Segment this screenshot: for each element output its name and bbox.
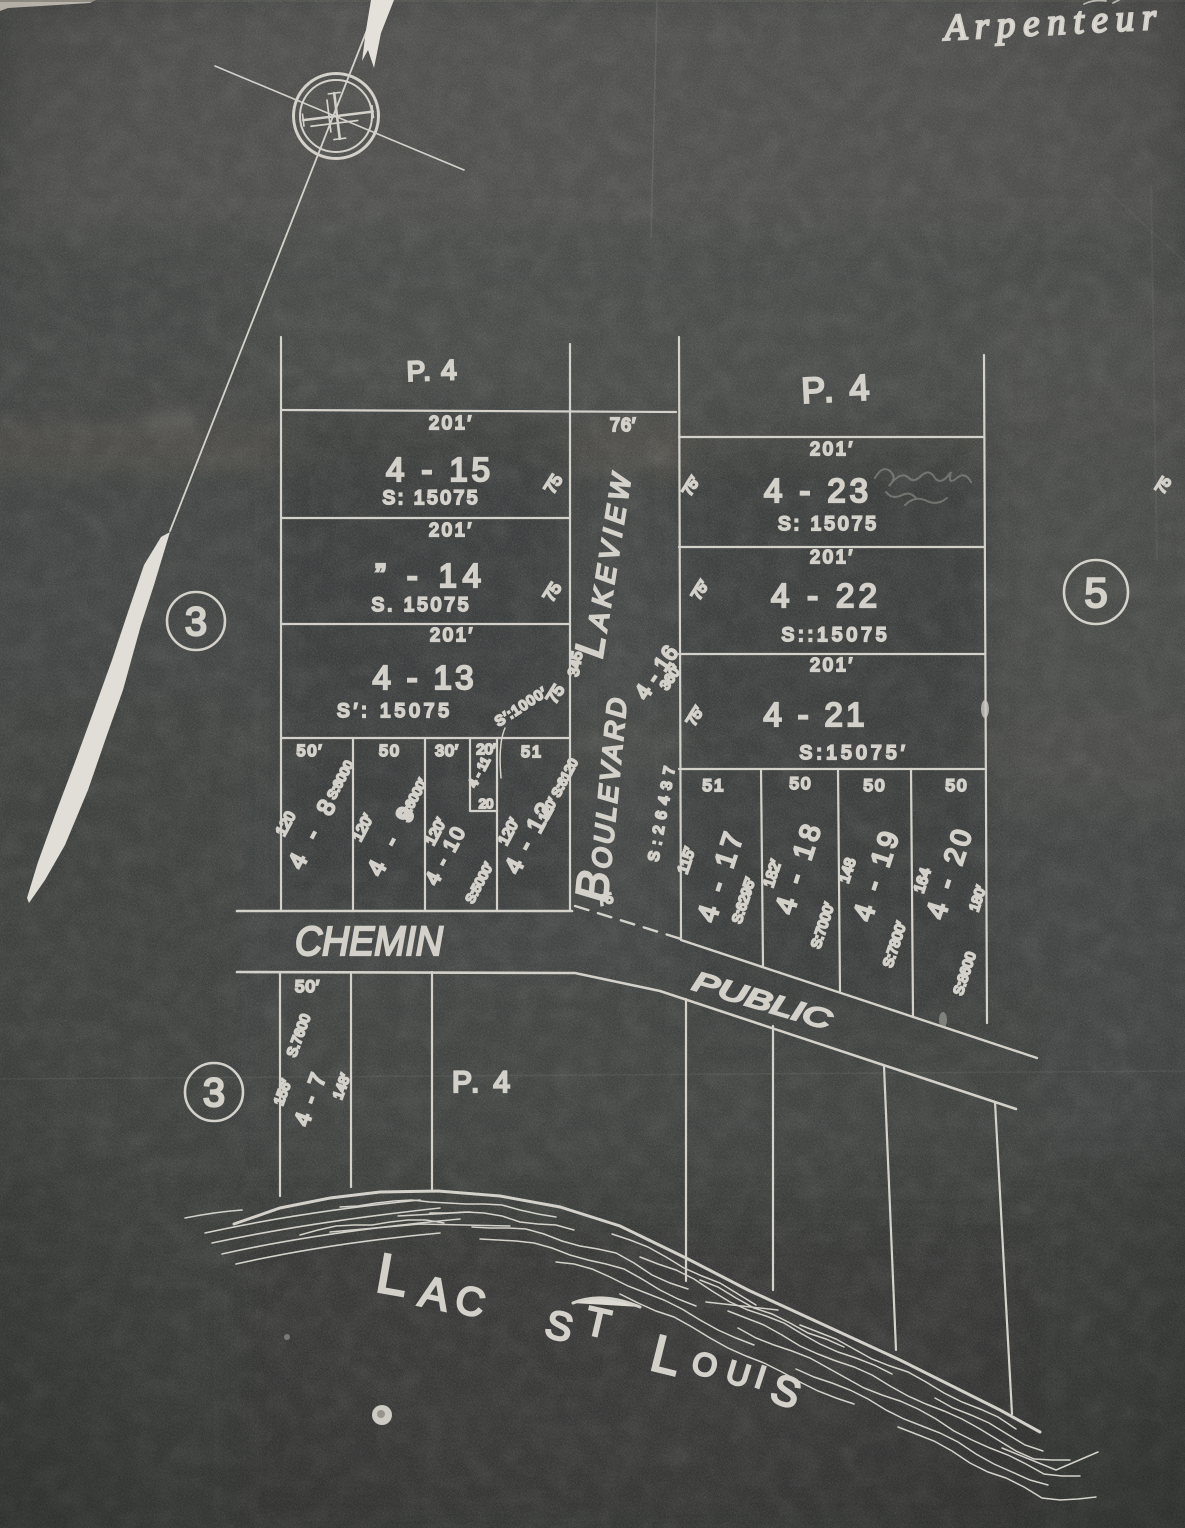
svg-text:51: 51 bbox=[703, 776, 726, 795]
svg-text:50′: 50′ bbox=[295, 977, 320, 996]
svg-text:5: 5 bbox=[1084, 569, 1107, 616]
svg-text:201′: 201′ bbox=[429, 413, 473, 433]
svg-text:P. 4: P. 4 bbox=[406, 354, 457, 387]
svg-text:201′: 201′ bbox=[429, 520, 473, 540]
svg-text:4 - 21: 4 - 21 bbox=[764, 696, 869, 733]
svg-text:50′: 50′ bbox=[297, 743, 324, 760]
svg-text:201′: 201′ bbox=[810, 439, 854, 459]
svg-text:4 - 22: 4 - 22 bbox=[771, 577, 881, 614]
svg-text:50: 50 bbox=[379, 743, 401, 760]
svg-text:4 - 13: 4 - 13 bbox=[373, 659, 478, 696]
svg-text:3: 3 bbox=[185, 600, 207, 644]
svg-text:201′: 201′ bbox=[810, 655, 854, 675]
svg-text:4 - 23: 4 - 23 bbox=[764, 472, 872, 509]
svg-text:76′: 76′ bbox=[610, 415, 636, 435]
svg-text:50: 50 bbox=[790, 774, 813, 793]
svg-text:” - 14: ” - 14 bbox=[375, 557, 485, 594]
svg-text:3: 3 bbox=[203, 1071, 225, 1115]
svg-text:CHEMIN: CHEMIN bbox=[295, 918, 443, 964]
svg-text:20: 20 bbox=[479, 796, 493, 811]
svg-text:50: 50 bbox=[946, 776, 969, 795]
svg-text:51: 51 bbox=[521, 744, 543, 761]
svg-text:4 - 15: 4 - 15 bbox=[386, 451, 494, 488]
svg-text:201′: 201′ bbox=[430, 625, 474, 645]
svg-text:30′: 30′ bbox=[435, 743, 459, 760]
svg-text:201′: 201′ bbox=[810, 547, 854, 567]
svg-text:50: 50 bbox=[864, 776, 887, 795]
